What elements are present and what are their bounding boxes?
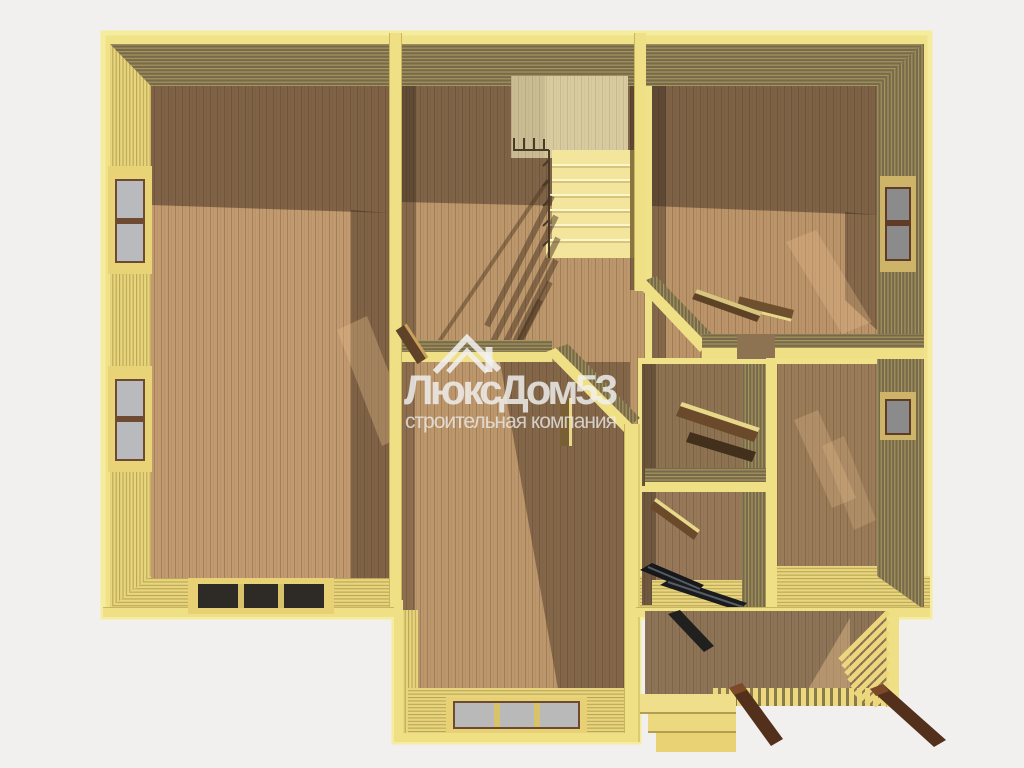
svg-text:ЛюксДом53: ЛюксДом53 xyxy=(404,366,618,413)
svg-text:строительная компания: строительная компания xyxy=(405,410,617,433)
